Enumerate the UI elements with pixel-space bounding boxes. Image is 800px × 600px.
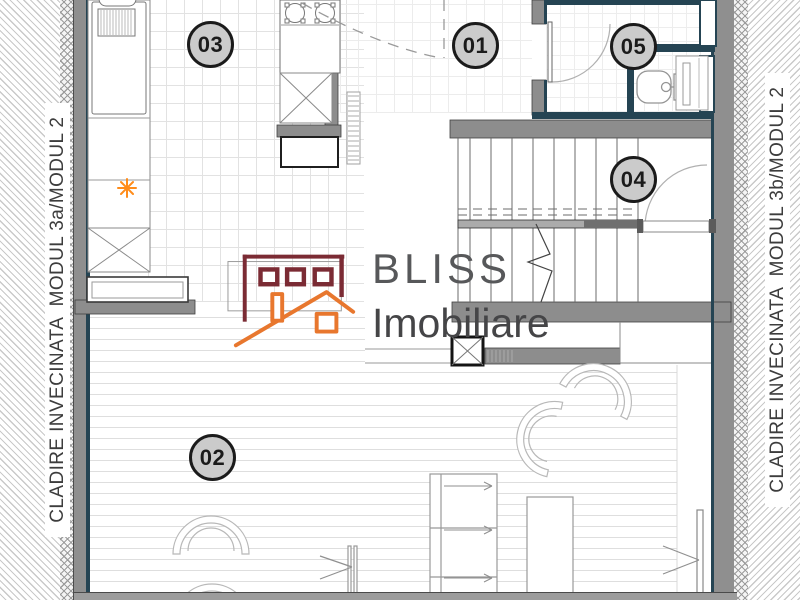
room-number: 02	[200, 445, 225, 471]
living-plank-floor-right	[365, 365, 677, 593]
room-number: 03	[198, 32, 223, 58]
room-label-04: 04	[610, 156, 657, 203]
bottom-section-wall	[74, 592, 737, 600]
hall-tile-floor	[340, 0, 532, 113]
room-label-02: 02	[189, 434, 236, 481]
room-number: 01	[463, 33, 488, 59]
logo-subtitle-text: Imobiliare	[372, 303, 550, 344]
room-label-01: 01	[452, 22, 499, 69]
left-neighbor-label: CLADIRE INVECINATA MODUL 3a/MODUL 2	[25, 51, 51, 600]
right-neighbor-label: CLADIRE INVECINATA MODUL 3b/MODUL 2	[745, 21, 771, 581]
room-number: 04	[621, 167, 646, 193]
kitchen-sink	[92, 0, 146, 114]
floor-plan: 01 02 03 04 05 BLISS Imobiliare CLADIRE …	[0, 0, 800, 600]
room-number: 05	[621, 34, 646, 60]
room-label-05: 05	[610, 23, 657, 70]
sparkle-icon	[118, 179, 136, 197]
logo-wordmark: BLISS Imobiliare	[372, 248, 550, 344]
logo-brand-text: BLISS	[372, 248, 550, 290]
room-label-03: 03	[187, 21, 234, 68]
cabinet-x-left	[88, 228, 150, 272]
logo-house-icon	[226, 249, 364, 351]
right-party-wall	[712, 0, 736, 600]
